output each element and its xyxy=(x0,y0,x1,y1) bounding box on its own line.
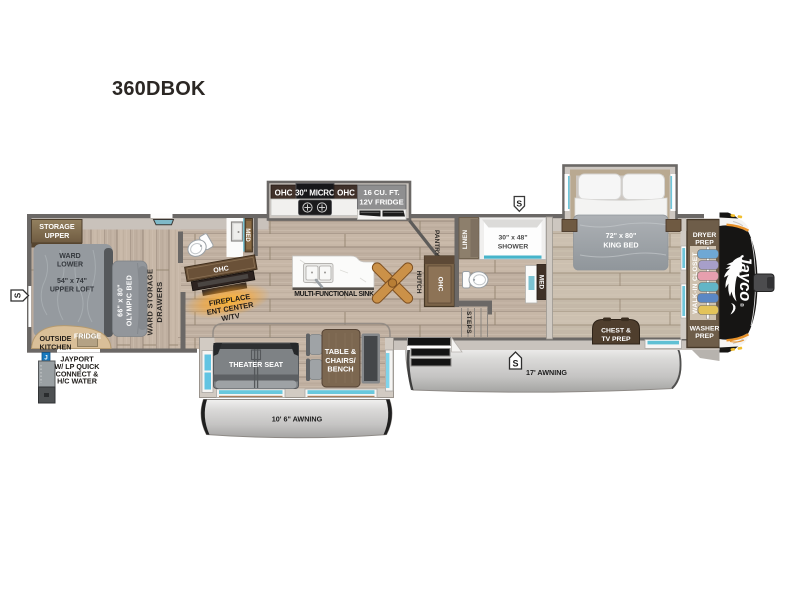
svg-text:CHAIRS/: CHAIRS/ xyxy=(325,356,355,365)
svg-text:WALK-IN CLOSET: WALK-IN CLOSET xyxy=(692,251,699,313)
svg-text:OHC: OHC xyxy=(436,277,443,292)
svg-text:WARD: WARD xyxy=(59,253,80,260)
svg-text:66" x 80": 66" x 80" xyxy=(118,284,125,317)
svg-text:UPPER: UPPER xyxy=(45,231,71,240)
svg-text:WARD STORAGE: WARD STORAGE xyxy=(146,269,155,336)
svg-text:MED: MED xyxy=(244,228,250,242)
svg-text:S: S xyxy=(14,292,23,298)
svg-text:S: S xyxy=(516,198,522,208)
svg-text:FRIDGE: FRIDGE xyxy=(74,332,101,341)
svg-text:BENCH: BENCH xyxy=(327,365,353,374)
svg-text:TABLE &: TABLE & xyxy=(325,347,357,356)
svg-text:360DBOK: 360DBOK xyxy=(112,78,206,100)
svg-text:PREP: PREP xyxy=(695,333,714,340)
svg-text:MED: MED xyxy=(537,275,544,290)
svg-text:72" x 80": 72" x 80" xyxy=(606,231,637,240)
svg-text:OHC: OHC xyxy=(337,188,355,197)
svg-text:OHC: OHC xyxy=(275,188,293,197)
svg-text:MULTI-FUNCTIONAL SINK: MULTI-FUNCTIONAL SINK xyxy=(294,291,374,298)
svg-text:DRYER: DRYER xyxy=(693,232,717,239)
svg-text:KING BED: KING BED xyxy=(603,241,638,250)
svg-text:STORAGE: STORAGE xyxy=(39,222,75,231)
svg-text:10' 6" AWNING: 10' 6" AWNING xyxy=(272,415,323,424)
svg-text:LOWER: LOWER xyxy=(57,262,83,269)
svg-text:16 CU. FT.: 16 CU. FT. xyxy=(363,188,399,197)
svg-text:PANTRY: PANTRY xyxy=(433,230,440,257)
svg-text:THEATER SEAT: THEATER SEAT xyxy=(229,360,284,369)
svg-text:CHEST &: CHEST & xyxy=(601,328,631,335)
svg-text:17' AWNING: 17' AWNING xyxy=(526,368,567,377)
svg-text:OLYMPIC BED: OLYMPIC BED xyxy=(127,275,134,326)
svg-text:54" x 74": 54" x 74" xyxy=(57,278,87,285)
svg-text:H/C WATER: H/C WATER xyxy=(57,377,98,386)
svg-text:LINEN: LINEN xyxy=(462,230,469,250)
svg-text:STEPS: STEPS xyxy=(465,311,472,334)
svg-text:HUTCH: HUTCH xyxy=(415,270,422,293)
svg-text:KITCHEN: KITCHEN xyxy=(40,342,72,351)
svg-text:Jayco: Jayco xyxy=(736,255,754,302)
svg-text:WASHER: WASHER xyxy=(690,326,720,333)
svg-text:S: S xyxy=(512,359,518,369)
svg-text:PREP: PREP xyxy=(695,240,714,247)
svg-text:TV PREP: TV PREP xyxy=(601,336,631,343)
svg-text:DRAWERS: DRAWERS xyxy=(155,281,164,322)
svg-text:SHOWER: SHOWER xyxy=(498,244,529,251)
svg-text:30" x 48": 30" x 48" xyxy=(498,235,527,242)
svg-text:30" MICRO: 30" MICRO xyxy=(295,189,335,198)
svg-text:®: ® xyxy=(738,303,745,307)
svg-text:12V FRIDGE: 12V FRIDGE xyxy=(359,198,403,207)
svg-text:UPPER LOFT: UPPER LOFT xyxy=(50,287,95,294)
